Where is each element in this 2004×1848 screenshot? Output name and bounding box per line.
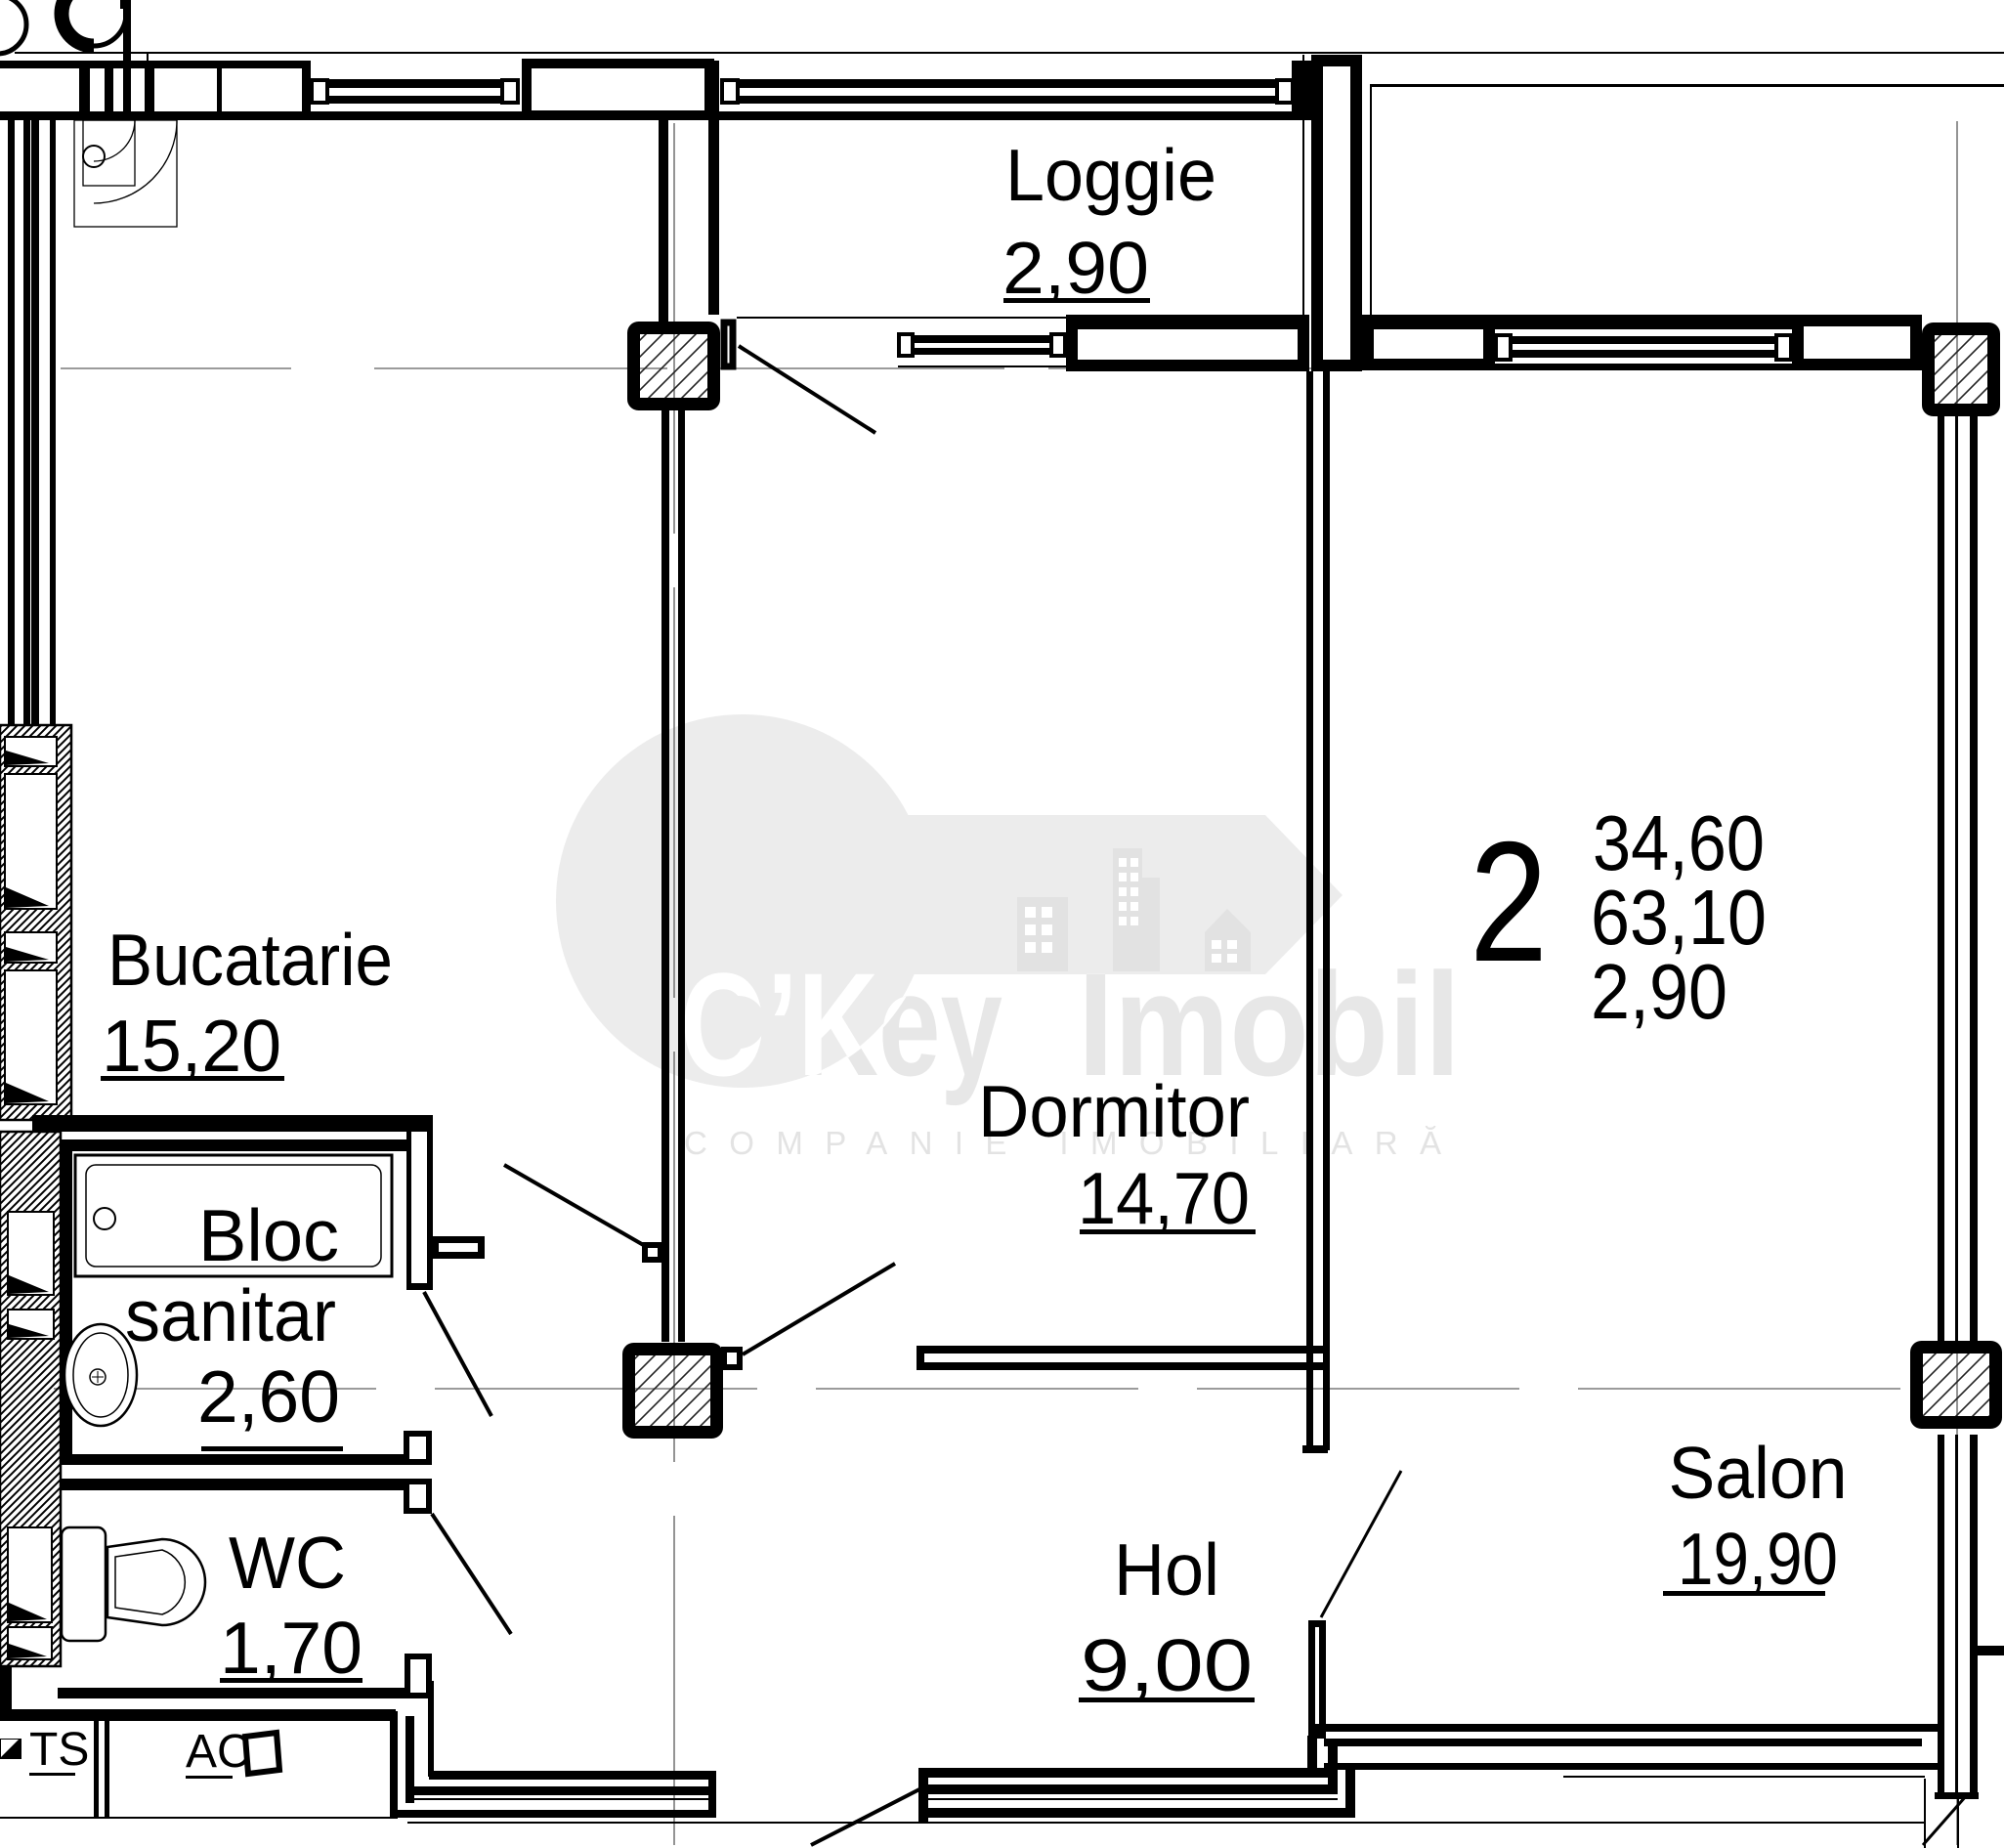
svg-text:Bloc: Bloc — [198, 1194, 339, 1276]
svg-text:TS: TS — [29, 1724, 89, 1776]
svg-text:Bucatarie: Bucatarie — [107, 919, 393, 1001]
svg-text:Dormitor: Dormitor — [978, 1070, 1250, 1152]
svg-text:2: 2 — [1470, 807, 1548, 998]
svg-text:9,00: 9,00 — [1081, 1624, 1253, 1706]
svg-text:2,90: 2,90 — [1002, 227, 1149, 309]
svg-text:WC: WC — [229, 1522, 346, 1604]
svg-text:Loggie: Loggie — [1005, 134, 1216, 216]
svg-text:2,60: 2,60 — [197, 1355, 340, 1438]
svg-text:Salon: Salon — [1669, 1432, 1848, 1514]
svg-text:1,70: 1,70 — [220, 1607, 362, 1689]
svg-text:19,90: 19,90 — [1678, 1518, 1838, 1600]
svg-text:Hol: Hol — [1114, 1528, 1219, 1611]
svg-text:sanitar: sanitar — [125, 1274, 336, 1356]
svg-text:14,70: 14,70 — [1078, 1157, 1250, 1239]
svg-text:2,90: 2,90 — [1591, 948, 1727, 1035]
svg-text:15,20: 15,20 — [102, 1005, 281, 1087]
svg-text:AC: AC — [186, 1726, 251, 1778]
